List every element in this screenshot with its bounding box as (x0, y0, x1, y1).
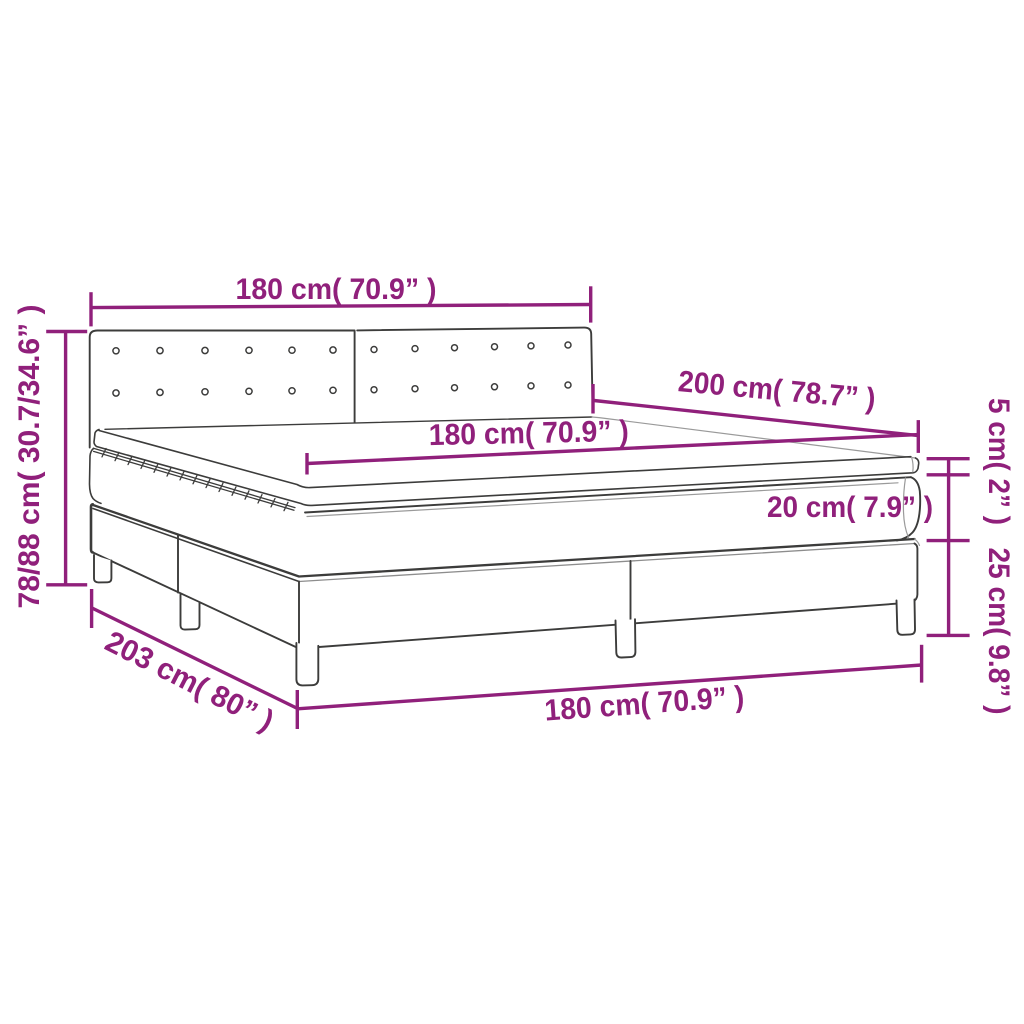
svg-text:25 cm( 9.8” ): 25 cm( 9.8” ) (982, 548, 1015, 715)
svg-text:5 cm( 2” ): 5 cm( 2” ) (982, 398, 1015, 525)
svg-text:78/88 cm( 30.7/34.6” ): 78/88 cm( 30.7/34.6” ) (13, 305, 46, 609)
svg-text:20 cm( 7.9” ): 20 cm( 7.9” ) (767, 491, 933, 524)
svg-text:180 cm( 70.9” ): 180 cm( 70.9” ) (428, 415, 629, 452)
svg-text:180 cm( 70.9” ): 180 cm( 70.9” ) (236, 273, 437, 306)
